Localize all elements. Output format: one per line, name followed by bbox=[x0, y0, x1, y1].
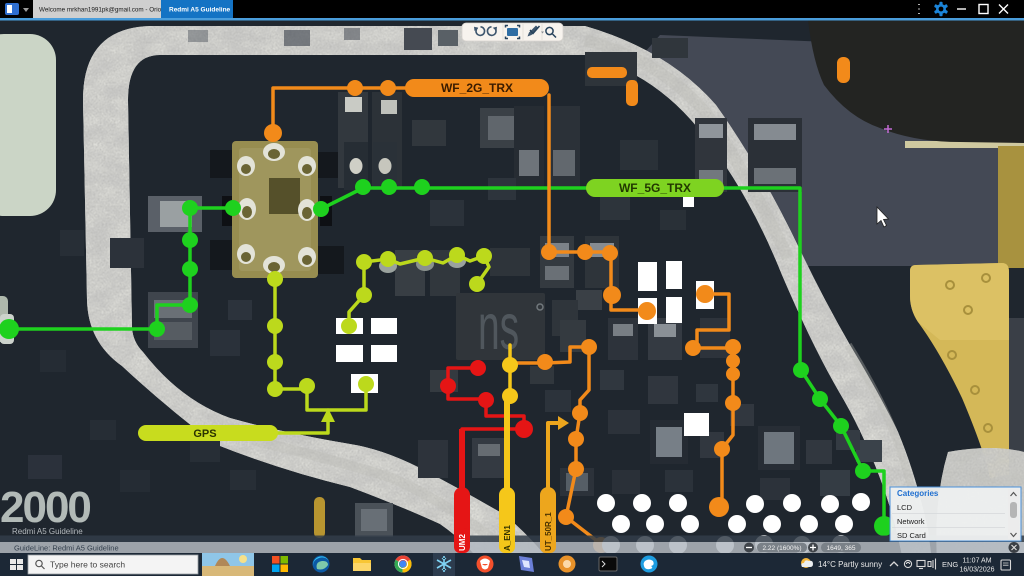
svg-text:SD Card: SD Card bbox=[897, 531, 926, 540]
svg-text:UT_50R_1: UT_50R_1 bbox=[544, 512, 553, 551]
svg-text:WF_5G_TRX: WF_5G_TRX bbox=[619, 181, 691, 195]
svg-text:Type here to search: Type here to search bbox=[50, 560, 125, 570]
svg-text:WF_2G_TRX: WF_2G_TRX bbox=[441, 81, 513, 95]
svg-text:Welcome mrkhan1991pk@gmail.com: Welcome mrkhan1991pk@gmail.com - Orion bbox=[39, 7, 165, 14]
svg-text:Categories: Categories bbox=[897, 489, 939, 498]
svg-text:ENG: ENG bbox=[942, 560, 958, 569]
svg-text:GuideLine: Redmi A5 Guideline: GuideLine: Redmi A5 Guideline bbox=[14, 544, 119, 553]
svg-text:2.22 (1600%): 2.22 (1600%) bbox=[762, 545, 801, 552]
svg-text:Redmi A5 Guideline: Redmi A5 Guideline bbox=[12, 527, 83, 536]
svg-text:GPS: GPS bbox=[193, 428, 216, 440]
svg-text:LCD: LCD bbox=[897, 503, 913, 512]
svg-text:2000: 2000 bbox=[0, 483, 90, 532]
svg-text:A_EN1: A_EN1 bbox=[503, 525, 512, 551]
svg-text:ns: ns bbox=[478, 291, 519, 364]
svg-text:Network: Network bbox=[897, 517, 925, 526]
svg-text:UM2: UM2 bbox=[458, 534, 467, 551]
svg-text:1649, 365: 1649, 365 bbox=[827, 545, 856, 552]
svg-text:16/03/2026: 16/03/2026 bbox=[959, 567, 994, 574]
svg-text:11:07 AM: 11:07 AM bbox=[962, 558, 991, 565]
svg-text:14°C Partly sunny: 14°C Partly sunny bbox=[818, 560, 882, 569]
svg-text:Redmi A5 Guideline: Redmi A5 Guideline bbox=[169, 7, 231, 14]
